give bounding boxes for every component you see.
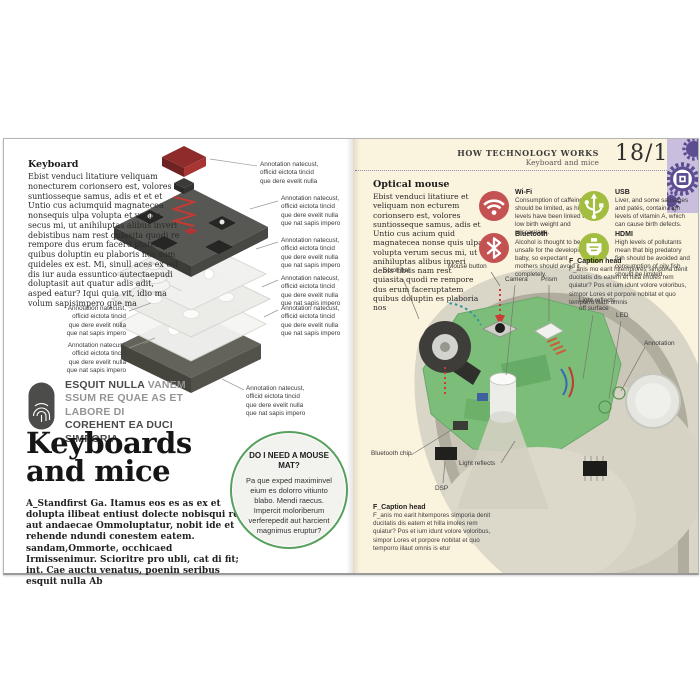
right-page: HOW TECHNOLOGY WORKS Keyboard and mice 1…: [353, 139, 698, 573]
annotation: Annotation natecust, officid eictota tin…: [260, 161, 326, 186]
feature-usb: USB Liver, and some sausages and patés, …: [579, 189, 691, 229]
optical-mouse-heading: Optical mouse: [373, 179, 483, 190]
caption-bottom-body: F_anis mo earit hitempores simporia deni…: [373, 512, 497, 553]
feature-usb-body: Liver, and some sausages and patés, cont…: [615, 197, 691, 229]
annotation: Annotation natecust, officid eictota tin…: [64, 305, 126, 338]
feature-usb-label: USB: [615, 189, 691, 196]
annotation: Annotation natecust, officid eictota tin…: [281, 305, 345, 338]
caption-bottom-heading: F_Caption head: [373, 504, 497, 511]
running-header-chapter: Keyboard and mice: [433, 158, 599, 167]
annotation: Annotation natecust, officid eictota tin…: [246, 385, 312, 418]
keyboard-intro-body: Ebist venduci litatiure veliquam nonectu…: [28, 172, 180, 309]
left-page: Keyboard Ebist venduci litatiure veliqua…: [4, 139, 353, 573]
keyboard-intro-heading: Keyboard: [28, 159, 180, 170]
feature-wifi-label: Wi-Fi: [515, 189, 589, 196]
qa-circle: DO I NEED A MOUSE MAT? Pa que exped maxi…: [230, 431, 348, 549]
running-header-series: HOW TECHNOLOGY WORKS: [433, 148, 599, 158]
qa-circle-heading: DO I NEED A MOUSE MAT?: [242, 451, 336, 472]
feature-wifi: Wi-Fi Consumption of caffeine should be …: [479, 189, 589, 237]
page-title: Keyboards and mice: [26, 429, 226, 486]
label-scroll-ball: Scroll ball: [383, 267, 411, 275]
bluetooth-icon: [479, 233, 509, 263]
fingerprint-icon: [28, 382, 55, 430]
label-prism: Prism: [541, 276, 557, 284]
optical-mouse-body: Ebist venduci litatiure et veliquam non …: [373, 192, 483, 312]
label-light-surface: Light reflects off surface: [579, 297, 623, 312]
caption-top-heading: F_Caption head: [569, 258, 695, 265]
label-dsp: DSP: [435, 485, 448, 493]
annotation: Annotation natecust, officid eictota tin…: [281, 275, 345, 308]
book-spread: Keyboard Ebist venduci litatiure veliqua…: [3, 138, 699, 575]
label-camera: Camera: [505, 276, 528, 284]
quote-bold-lead: ESQUIT NULLA: [65, 379, 145, 391]
standfirst: A_Standfirst Ga. Itamus eos es as ex et …: [26, 499, 244, 588]
usb-icon: [579, 191, 609, 221]
label-mouse-button: Mouse button: [448, 263, 487, 271]
label-led: LED: [616, 312, 628, 320]
annotation: Annotation natecust, officid eictota tin…: [281, 237, 345, 270]
optical-mouse-intro: Optical mouse Ebist venduci litatiure et…: [373, 179, 483, 312]
caption-bottom: F_Caption head F_anis mo earit hitempore…: [373, 504, 497, 553]
qa-circle-body: Pa que exped maximinvel eium es dolorro …: [242, 476, 336, 537]
wifi-icon: [479, 191, 509, 221]
label-bluetooth-chip: Bluetooth chip: [371, 450, 412, 458]
header-rule: [355, 170, 667, 171]
label-annotation: Annotation: [644, 340, 675, 348]
feature-hdmi-label: HDMI: [615, 231, 691, 238]
label-light-reflects: Light reflects: [459, 460, 495, 468]
annotation: Annotation natecust, officid eictota tin…: [281, 195, 345, 228]
annotation: Annotation natecust, officid eictota tin…: [64, 342, 126, 375]
keyboard-intro: Keyboard Ebist venduci litatiure veliqua…: [28, 159, 180, 309]
feature-bluetooth-label: Bluetooth: [515, 231, 589, 238]
